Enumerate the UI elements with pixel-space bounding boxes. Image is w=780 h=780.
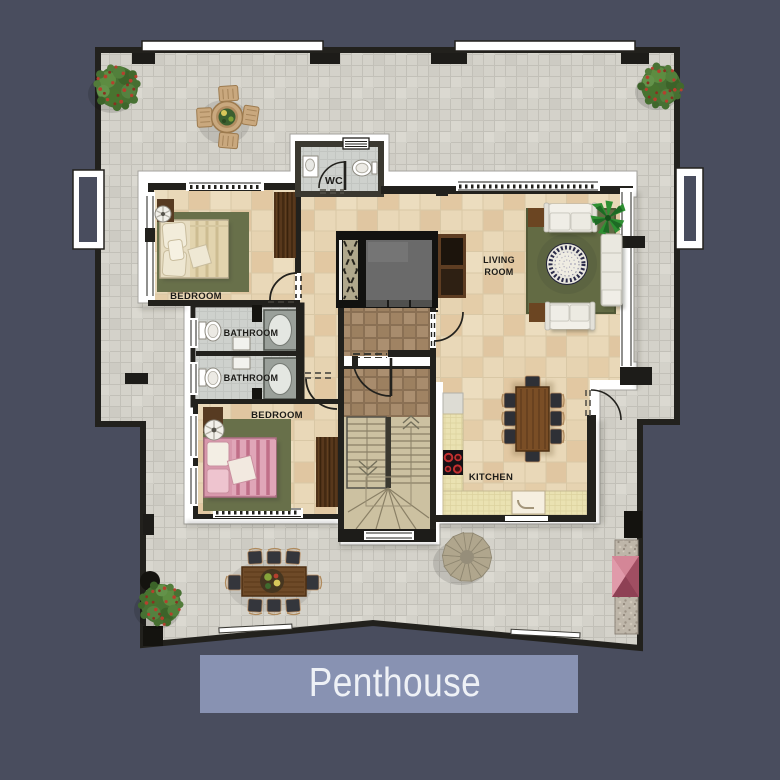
svg-text:BEDROOM: BEDROOM bbox=[170, 291, 222, 302]
svg-text:BATHROOM: BATHROOM bbox=[224, 373, 279, 383]
svg-text:KITCHEN: KITCHEN bbox=[469, 472, 513, 483]
svg-text:WC: WC bbox=[325, 175, 343, 187]
svg-text:BEDROOM: BEDROOM bbox=[251, 410, 303, 421]
svg-text:BATHROOM: BATHROOM bbox=[224, 328, 279, 338]
svg-text:Penthouse: Penthouse bbox=[309, 660, 481, 706]
svg-text:LIVING: LIVING bbox=[483, 255, 515, 265]
svg-text:ROOM: ROOM bbox=[484, 267, 513, 277]
